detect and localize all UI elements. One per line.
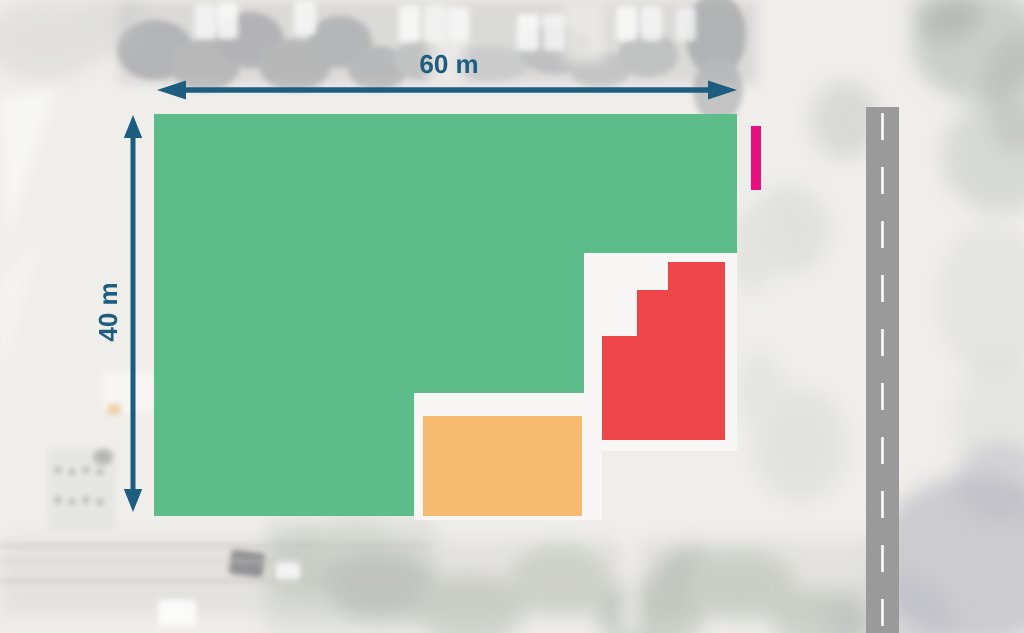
- svg-text:60 m: 60 m: [419, 49, 478, 79]
- svg-text:40 m: 40 m: [93, 282, 123, 341]
